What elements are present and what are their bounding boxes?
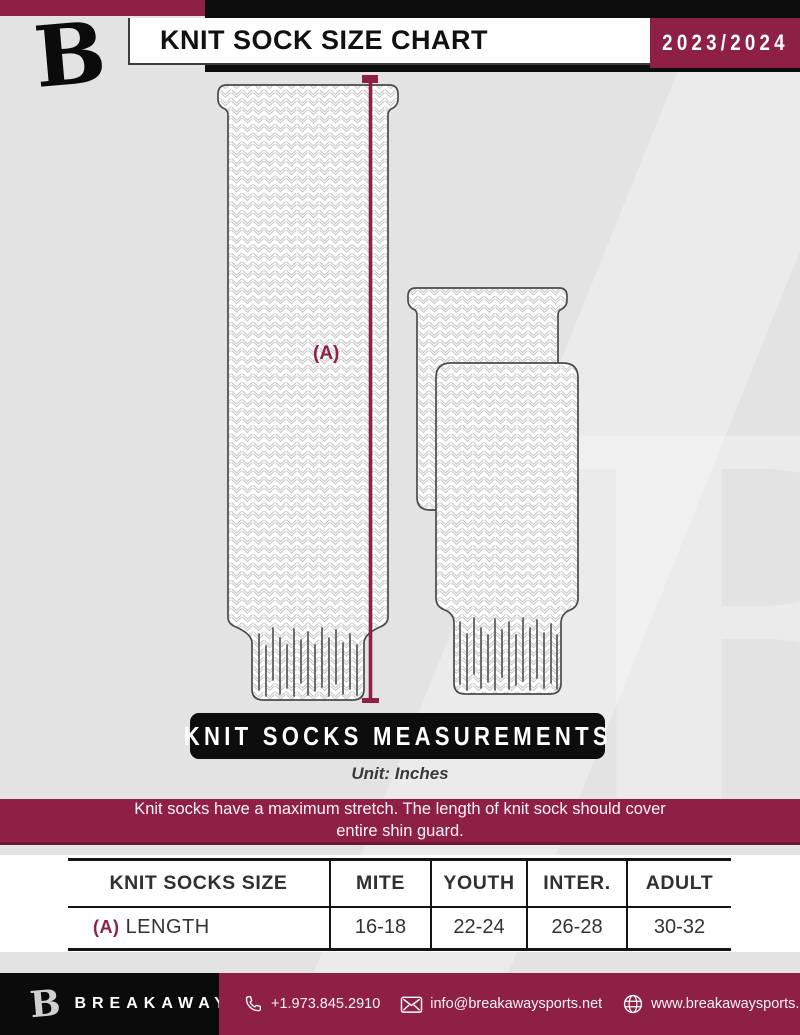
col-header-inter: INTER. [527, 860, 627, 907]
stretch-notice-line1: Knit socks have a maximum stretch. The l… [134, 799, 666, 821]
footer-phone-text: +1.973.845.2910 [271, 996, 380, 1012]
unit-note: Unit: Inches [0, 764, 800, 784]
page-title: KNIT SOCK SIZE CHART [160, 25, 488, 56]
stretch-notice-line2: entire shin guard. [336, 821, 464, 843]
sock-diagram [0, 72, 800, 712]
length-adult: 30-32 [627, 907, 731, 950]
footer-brand-panel: B BREAKAWAY [0, 973, 219, 1035]
size-table-header-row: KNIT SOCKS SIZE MITE YOUTH INTER. ADULT [68, 860, 731, 907]
footer-contact-panel: +1.973.845.2910 info@breakawaysports.net… [219, 973, 800, 1035]
col-header-mite: MITE [330, 860, 431, 907]
phone-icon [243, 994, 264, 1015]
length-youth: 22-24 [431, 907, 527, 950]
season-text: 2023/2024 [662, 30, 789, 56]
sock-adult [436, 363, 578, 694]
measurements-banner-text: KNIT SOCKS MEASUREMENTS [183, 721, 611, 752]
col-header-adult: ADULT [627, 860, 731, 907]
globe-icon [622, 993, 644, 1015]
stretch-notice: Knit socks have a maximum stretch. The l… [0, 799, 800, 845]
row-label-text: LENGTH [126, 916, 210, 938]
row-label-length: (A) LENGTH [68, 907, 330, 950]
title-box: KNIT SOCK SIZE CHART [128, 18, 650, 65]
footer-website-text: www.breakawaysports.net [651, 996, 800, 1012]
footer-phone[interactable]: +1.973.845.2910 [243, 994, 380, 1015]
row-label-key: (A) [93, 917, 120, 937]
brand-logo-icon: B [16, 2, 124, 106]
dimension-a-label: (A) [313, 343, 339, 365]
measurements-banner: KNIT SOCKS MEASUREMENTS [190, 713, 605, 759]
col-header-youth: YOUTH [431, 860, 527, 907]
page: B B KNIT SOCK SIZE CHART 2023/2024 [0, 0, 800, 1035]
season-badge: 2023/2024 [650, 18, 800, 68]
size-table-band: KNIT SOCKS SIZE MITE YOUTH INTER. ADULT … [0, 855, 800, 952]
footer-email[interactable]: info@breakawaysports.net [400, 994, 602, 1015]
footer-brand-name: BREAKAWAY [74, 995, 231, 1013]
length-inter: 26-28 [527, 907, 627, 950]
footer-website[interactable]: www.breakawaysports.net [622, 993, 800, 1015]
col-header-size: KNIT SOCKS SIZE [68, 860, 330, 907]
size-table: KNIT SOCKS SIZE MITE YOUTH INTER. ADULT … [68, 858, 731, 951]
footer-email-text: info@breakawaysports.net [430, 996, 602, 1012]
footer-logo-icon: B [28, 982, 62, 1026]
size-table-length-row: (A) LENGTH 16-18 22-24 26-28 30-32 [68, 907, 731, 950]
brand-logo-letter: B [30, 2, 109, 107]
length-mite: 16-18 [330, 907, 431, 950]
envelope-icon [400, 994, 423, 1015]
